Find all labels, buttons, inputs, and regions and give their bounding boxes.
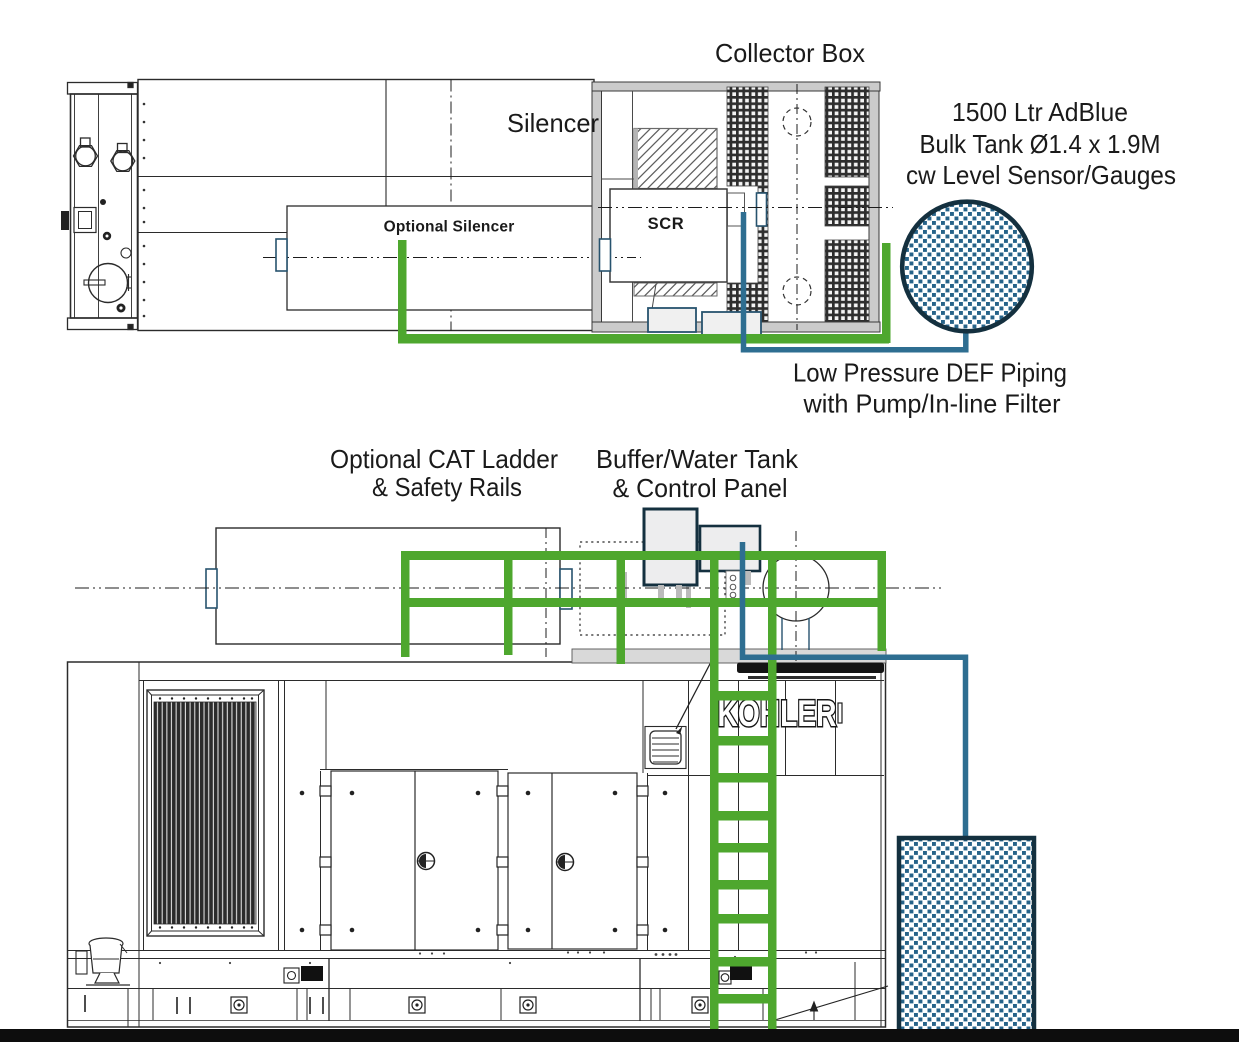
svg-text:Optional Silencer: Optional Silencer [384, 219, 515, 236]
svg-text:Optional CAT Ladder: Optional CAT Ladder [330, 444, 558, 474]
svg-text:Low Pressure DEF Piping: Low Pressure DEF Piping [793, 358, 1067, 388]
svg-text:& Control Panel: & Control Panel [613, 473, 788, 503]
svg-text:Collector Box: Collector Box [715, 38, 865, 68]
svg-text:1500 Ltr AdBlue: 1500 Ltr AdBlue [952, 97, 1128, 127]
svg-text:SCR: SCR [648, 215, 685, 233]
svg-text:with Pump/In-line Filter: with Pump/In-line Filter [803, 389, 1061, 419]
svg-text:Buffer/Water Tank: Buffer/Water Tank [596, 444, 799, 474]
svg-text:Bulk Tank Ø1.4 x 1.9M: Bulk Tank Ø1.4 x 1.9M [920, 129, 1161, 159]
svg-text:cw Level Sensor/Gauges: cw Level Sensor/Gauges [906, 160, 1176, 190]
svg-text:& Safety Rails: & Safety Rails [372, 472, 522, 502]
svg-text:Silencer: Silencer [507, 108, 599, 138]
